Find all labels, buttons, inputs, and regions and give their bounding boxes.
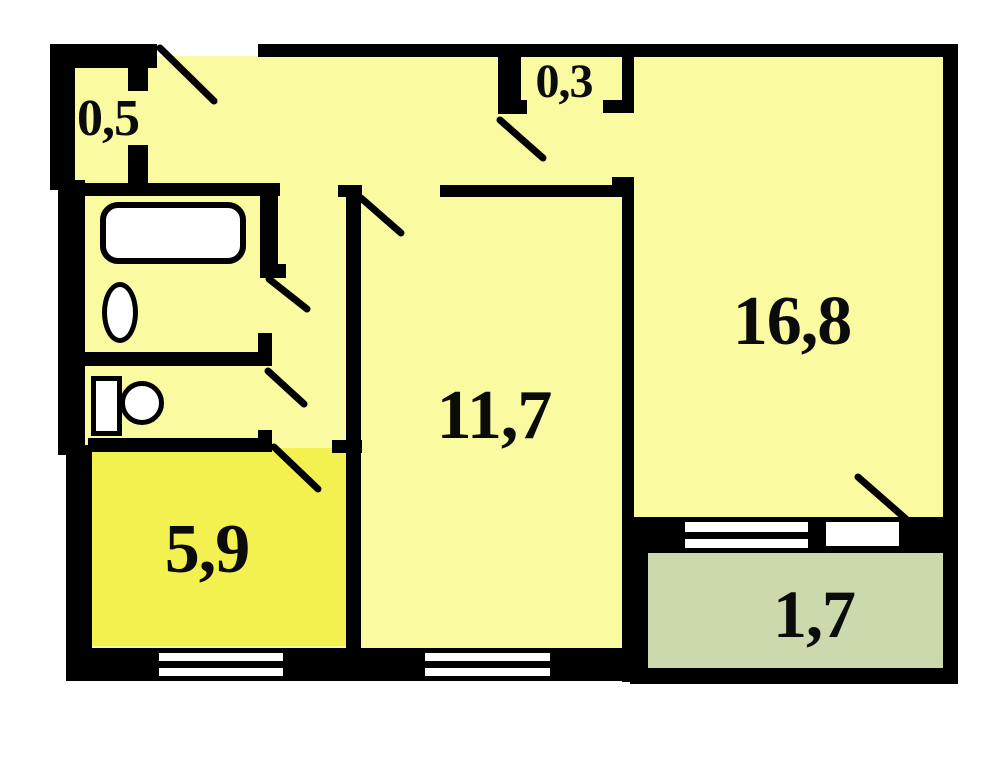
toilet-bowl (120, 381, 164, 425)
wall-bottom (66, 648, 648, 681)
living-room-area-label: 16,8 (733, 287, 852, 357)
wall-kitchen-top (88, 438, 272, 452)
wall-bath-toilet-divider (85, 352, 272, 366)
mezzanine-area-label: 0,3 (536, 58, 593, 106)
living-room-window (683, 520, 810, 550)
bathtub (100, 202, 246, 264)
wall-bedroom-left-top-foot (338, 185, 362, 197)
window-pane (157, 651, 285, 663)
bedroom-area-label: 11,7 (437, 381, 552, 451)
window-pane (683, 537, 810, 551)
wall-top-main (258, 44, 958, 57)
wall-closet05-partition-upper (128, 57, 148, 91)
hall-closet-area-label: 0,5 (77, 93, 139, 145)
wall-living-left-foot (612, 177, 634, 193)
wall-bedroom-top (440, 185, 622, 197)
window-pane (423, 666, 552, 678)
floor-plan: 0,5 0,3 16,8 11,7 5,9 1,7 (0, 0, 1005, 768)
wall-mezzanine-left-stub (498, 56, 521, 103)
wall-left-upper (50, 44, 75, 190)
balcony-door (823, 519, 902, 549)
wall-mezzanine-left-foot (498, 100, 527, 114)
wall-closet05-partition-lower (128, 145, 148, 185)
wall-divider-foot (258, 333, 272, 366)
kitchen-window (157, 651, 285, 678)
wall-bathroom-right-foot (260, 264, 286, 278)
wall-kitchen-top-foot (258, 430, 272, 452)
wall-left-middle (58, 180, 85, 455)
balcony-area-label: 1,7 (773, 580, 855, 648)
window-pane (683, 520, 810, 534)
wall-bathroom-top (85, 183, 280, 196)
wall-left-lower (66, 445, 92, 681)
wall-kitchen-door-foot (332, 440, 362, 453)
wall-living-left (622, 177, 634, 682)
window-pane (157, 666, 285, 678)
bedroom-window (423, 651, 552, 678)
wall-mezzanine-right-foot (603, 100, 634, 113)
toilet-tank (91, 376, 122, 436)
sink (102, 282, 138, 343)
wall-right-outer (943, 44, 958, 684)
wall-bedroom-left (346, 185, 361, 648)
wall-balcony-bottom (630, 668, 958, 684)
kitchen-area-label: 5,9 (165, 515, 250, 585)
window-pane (423, 651, 552, 663)
